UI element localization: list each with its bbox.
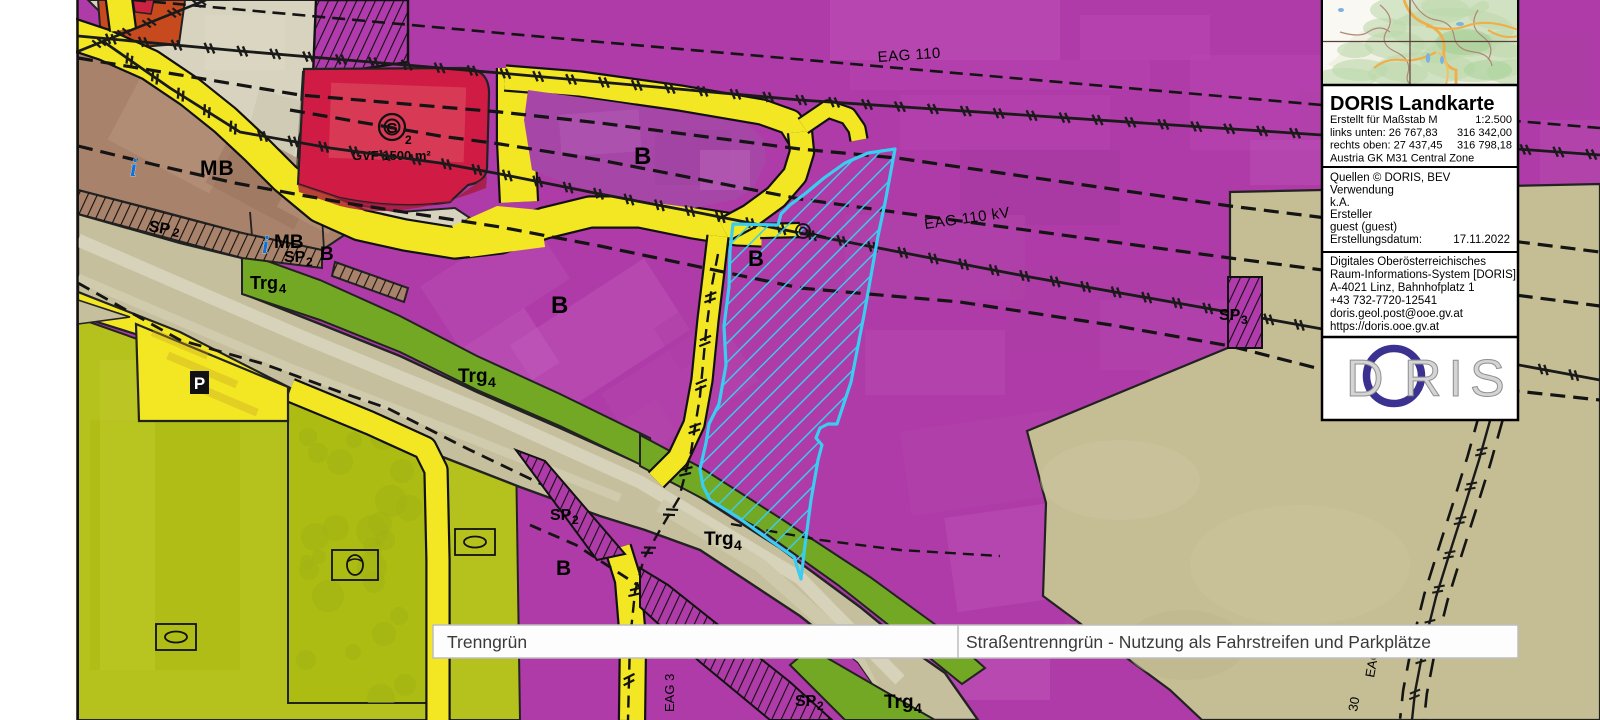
svg-text:Trg: Trg: [884, 692, 914, 713]
svg-text:2: 2: [405, 133, 412, 147]
svg-text:k.A.: k.A.: [1330, 197, 1350, 209]
svg-text:2: 2: [817, 699, 824, 713]
svg-text:30: 30: [1345, 696, 1362, 713]
svg-text:4: 4: [488, 374, 496, 390]
svg-text:1:2.500: 1:2.500: [1475, 114, 1512, 126]
svg-text:B: B: [556, 557, 571, 580]
svg-text:EAG 3: EAG 3: [662, 674, 677, 712]
svg-text:4: 4: [914, 700, 922, 716]
svg-text:D: D: [1346, 350, 1384, 408]
svg-text:Trg: Trg: [250, 273, 278, 293]
svg-text:B: B: [320, 244, 334, 265]
svg-text:Digitales Oberösterreichisches: Digitales Oberösterreichisches: [1330, 256, 1486, 268]
svg-text:2: 2: [572, 513, 579, 527]
svg-text:B: B: [748, 246, 764, 271]
svg-text:MB: MB: [200, 157, 235, 180]
svg-text:316 342,00: 316 342,00: [1457, 127, 1512, 139]
svg-text:DORIS Landkarte: DORIS Landkarte: [1330, 93, 1494, 115]
svg-text:B: B: [551, 292, 568, 319]
svg-text:Erstellt für Maßstab M: Erstellt für Maßstab M: [1330, 114, 1438, 126]
svg-text:rechts oben: 27 437,45: rechts oben: 27 437,45: [1330, 140, 1443, 152]
svg-text:i: i: [130, 155, 137, 182]
svg-text:Austria GK M31 Central Zone: Austria GK M31 Central Zone: [1330, 152, 1474, 164]
svg-text:Straßentrenngrün - Nutzung als: Straßentrenngrün - Nutzung als Fahrstrei…: [966, 632, 1431, 652]
svg-text:Raum-Informations-System [DORI: Raum-Informations-System [DORIS]: [1330, 269, 1516, 281]
svg-text:guest (guest): guest (guest): [1330, 222, 1397, 234]
svg-text:Trg: Trg: [704, 529, 734, 550]
svg-text:Trenngrün: Trenngrün: [447, 632, 527, 652]
svg-text:SP: SP: [550, 507, 572, 524]
svg-text:Verwendung: Verwendung: [1330, 184, 1394, 196]
svg-text:4: 4: [279, 281, 287, 296]
svg-text:RIS: RIS: [1404, 350, 1512, 408]
svg-text:P: P: [194, 374, 205, 393]
svg-text:2: 2: [306, 255, 313, 269]
svg-text:+43 732-7720-12541: +43 732-7720-12541: [1330, 295, 1437, 307]
svg-text:doris.geol.post@ooe.gv.at: doris.geol.post@ooe.gv.at: [1330, 308, 1464, 320]
svg-text:Trg: Trg: [458, 366, 488, 387]
svg-text:3: 3: [1241, 313, 1248, 327]
svg-text:SP: SP: [795, 693, 817, 710]
svg-text:Ersteller: Ersteller: [1330, 209, 1372, 221]
svg-text:4: 4: [734, 537, 742, 553]
svg-text:SP: SP: [1219, 307, 1241, 324]
svg-text:Quellen © DORIS, BEV: Quellen © DORIS, BEV: [1330, 172, 1451, 184]
svg-text:A-4021 Linz, Bahnhofplatz 1: A-4021 Linz, Bahnhofplatz 1: [1330, 282, 1475, 294]
svg-text:i: i: [262, 232, 269, 259]
svg-text:https://doris.ooe.gv.at: https://doris.ooe.gv.at: [1330, 321, 1440, 333]
svg-text:Erstellungsdatum:: Erstellungsdatum:: [1330, 234, 1422, 246]
svg-text:316 798,18: 316 798,18: [1457, 140, 1512, 152]
svg-text:B: B: [634, 143, 651, 170]
svg-text:17.11.2022: 17.11.2022: [1453, 234, 1510, 246]
svg-text:links unten: 26 767,83: links unten: 26 767,83: [1330, 127, 1438, 139]
svg-text:SP: SP: [284, 249, 306, 266]
